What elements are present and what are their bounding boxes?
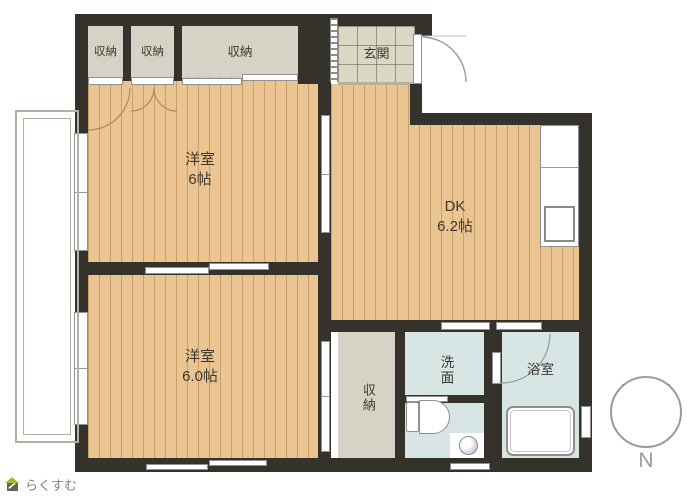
logo-house-icon	[5, 477, 20, 492]
balcony-inner	[23, 118, 71, 435]
compass-north-label: N	[632, 449, 660, 473]
entrance-step-line	[338, 82, 415, 85]
closet-top-wide-door-a	[182, 78, 242, 85]
bathtub	[506, 406, 575, 456]
dk-label: DK 6.2帖	[405, 197, 505, 236]
room1-dk-door-divider	[322, 174, 329, 175]
wash-basin-bowl	[459, 436, 478, 455]
dk-size: 6.2帖	[437, 218, 473, 235]
entrance-label: 玄関	[338, 46, 415, 63]
kitchen-sink	[544, 206, 575, 242]
closet-top-left-door	[88, 77, 123, 85]
wall-top-chunk	[298, 26, 331, 84]
western-room-1-name: 洋室	[185, 151, 215, 168]
compass-circle	[610, 376, 682, 448]
entrance-accordion-door	[330, 18, 338, 82]
dk-name: DK	[445, 198, 466, 215]
closet-top-wide-label: 収納	[182, 44, 298, 60]
western-room-1-label: 洋室 6帖	[150, 150, 250, 189]
wall-dk-top	[410, 113, 592, 125]
rooms-sliding-door-a	[145, 267, 209, 274]
bathroom-door	[492, 352, 501, 384]
window-bottom-washroom	[450, 463, 490, 470]
window-bottom-room2-b	[209, 460, 267, 466]
closet-top-mid-label: 収納	[131, 45, 174, 60]
washroom-label: 洗面	[437, 343, 455, 397]
rooms-sliding-door-b	[209, 263, 269, 270]
wall-entrance-stub	[410, 84, 422, 115]
kitchen-counter-divider	[541, 167, 578, 168]
window-bottom-room2-a	[146, 464, 208, 470]
wall-closet-divider-2	[174, 26, 182, 81]
bathroom-label: 浴室	[502, 361, 579, 379]
entrance-door-arc	[423, 37, 466, 82]
bathtub-inner-line	[510, 410, 571, 452]
wall-washroom-bath	[484, 332, 502, 458]
wall-closet-washroom	[395, 332, 405, 458]
dk-bath-opening	[496, 322, 542, 330]
wall-top	[75, 14, 432, 26]
logo-text: らくすむ	[25, 475, 77, 494]
western-room-1-size: 6帖	[188, 171, 211, 188]
closet-top-left-label: 収納	[88, 45, 123, 60]
western-room-2-name: 洋室	[185, 348, 215, 365]
closet-top-mid-door	[131, 77, 174, 85]
western-room-2-label: 洋室 6.0帖	[150, 347, 250, 386]
dk-floor-upper	[331, 84, 411, 125]
closet-bottom-door-divider	[322, 396, 329, 397]
toilet-tank	[406, 402, 419, 432]
logo: らくすむ	[5, 475, 77, 494]
floor-plan: 収納 収納 収納 玄関 洋室 6帖 DK 6.2帖 洋室 6.0帖 収納 洗面 …	[0, 0, 690, 499]
western-room-2-size: 6.0帖	[182, 368, 218, 385]
window-right-bath	[581, 406, 591, 438]
closet-bottom-label: 収納	[359, 368, 376, 428]
closet-top-wide-door-b	[242, 74, 298, 81]
dk-washroom-door	[441, 322, 490, 330]
wall-closet-divider-1	[123, 26, 131, 81]
